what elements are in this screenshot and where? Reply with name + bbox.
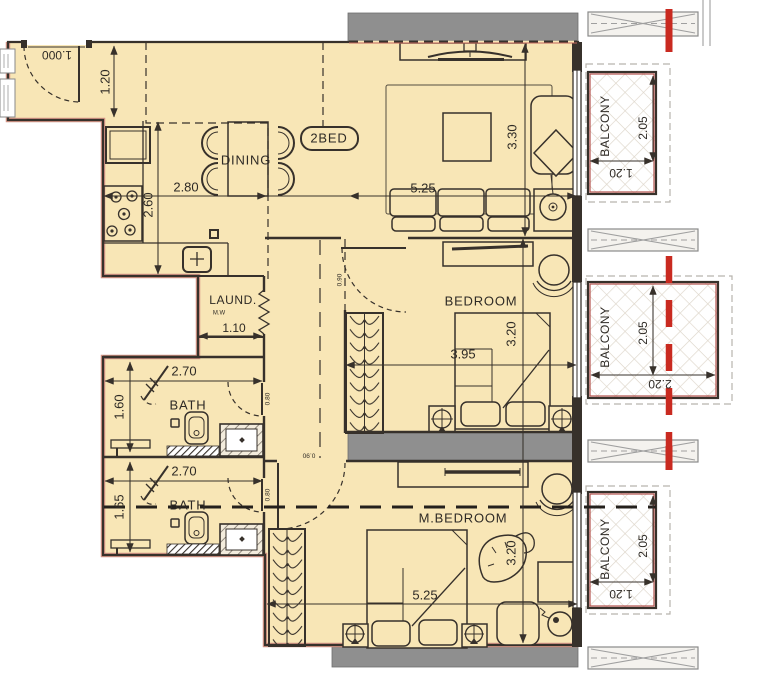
master-window: [573, 492, 581, 608]
dim-master-door: 0.90: [302, 451, 315, 458]
unit-type-badge: 2BED: [301, 127, 358, 150]
service-shaft-middle: [348, 432, 578, 461]
dim-bedroom-door: 0.90: [337, 273, 344, 286]
entry-panel-1: [0, 49, 15, 73]
shower-icon: [220, 424, 263, 456]
vanity-counter: [167, 544, 219, 554]
dim-balcony3-depth: 2.05: [636, 534, 650, 558]
bedroom-wardrobe: [346, 313, 383, 433]
dim-master-depth: 3.20: [503, 540, 518, 565]
master-wardrobe: [269, 529, 305, 646]
dim-entry-depth: 1.20: [97, 69, 112, 94]
pillow: [372, 621, 410, 646]
label-balcony-2: BALCONY: [598, 306, 612, 368]
shower-icon: [220, 524, 263, 555]
armchair: [531, 96, 578, 176]
dim-master-width: 5.25: [412, 587, 437, 602]
pillow: [461, 402, 500, 426]
label-balcony-3: BALCONY: [598, 518, 612, 580]
master-nightstand-right: [462, 624, 487, 647]
dim-laundry-width: 1.10: [222, 321, 246, 335]
label-bath-1: BATH: [170, 397, 207, 412]
bedroom-nightstand-left: [429, 406, 455, 432]
dim-bath2-width: 2.70: [171, 463, 196, 478]
dim-bedroom-depth: 3.20: [503, 321, 518, 346]
unit-type-label: 2BED: [310, 130, 347, 145]
living-window: [573, 70, 581, 196]
master-nightstand-left: [343, 624, 368, 647]
service-shaft-bottom: [332, 647, 578, 667]
label-bath-2: BATH: [170, 497, 207, 512]
label-laundry: LAUND.: [209, 293, 257, 307]
label-washing-machine: M.W: [213, 311, 226, 317]
dim-bedroom-width: 3.95: [450, 346, 475, 361]
label-dining: DINING: [221, 152, 271, 167]
entry-panel-2: [0, 79, 15, 117]
service-shaft-top: [348, 13, 578, 42]
dim-balcony2-depth: 2.05: [636, 321, 650, 345]
dim-balcony2-width: 2.20: [648, 377, 672, 391]
dim-balcony3-width: 1.20: [609, 587, 633, 601]
windows: [572, 42, 582, 647]
master-dresser: [538, 562, 578, 602]
dim-living-depth: 3.30: [504, 124, 519, 149]
vanity-counter: [167, 446, 219, 456]
label-balcony-1: BALCONY: [598, 95, 612, 157]
top-wall-detail: [349, 42, 577, 44]
floor-plan: 2BED DINING BEDROOM M.BEDROOM BATH BATH …: [0, 0, 758, 673]
dim-bath2-door: 0.80: [265, 488, 272, 501]
dim-bath2-depth: 1.65: [111, 494, 126, 519]
dim-bath1-width: 2.70: [171, 363, 196, 378]
floor-plan-svg: 2BED DINING BEDROOM M.BEDROOM BATH BATH …: [0, 0, 758, 673]
label-bedroom: BEDROOM: [445, 293, 518, 308]
dim-kitchen-width: 2.80: [173, 179, 198, 194]
pillow: [506, 402, 545, 426]
dim-bath1-door: 0.80: [265, 392, 272, 405]
pillow: [419, 620, 457, 645]
label-master-bedroom: M.BEDROOM: [419, 510, 508, 525]
dim-balcony1-depth: 2.05: [636, 116, 650, 140]
dim-living-width: 5.25: [410, 180, 435, 195]
dim-balcony1-width: 1.20: [609, 166, 633, 180]
bedroom-window: [573, 282, 581, 398]
bedroom-nightstand-right: [549, 406, 575, 432]
dim-bath1-depth: 1.60: [111, 394, 126, 419]
dim-entry-door: 1.000: [42, 48, 72, 62]
dim-kitchen-depth: 2.60: [140, 192, 155, 217]
